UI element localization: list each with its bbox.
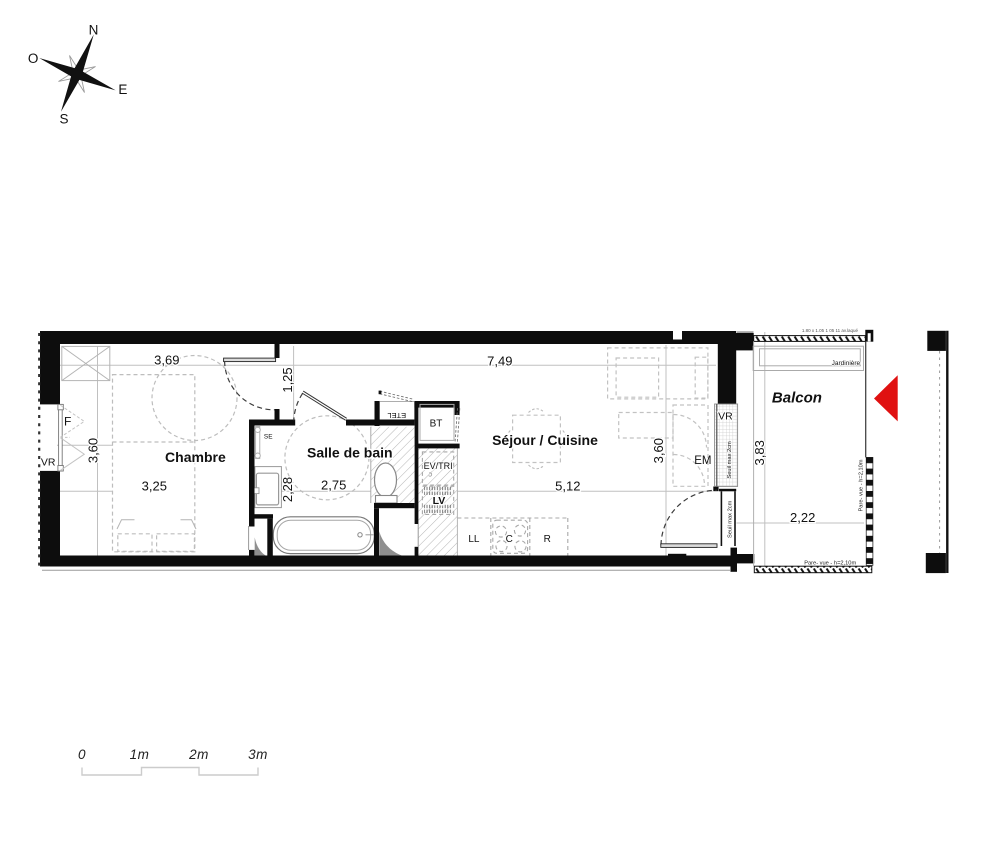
svg-text:R: R [544, 534, 551, 545]
svg-text:Pare- vue - h=2,10m: Pare- vue - h=2,10m [859, 459, 865, 511]
svg-text:0: 0 [78, 747, 86, 762]
svg-text:C: C [506, 534, 513, 545]
svg-text:2m: 2m [188, 747, 209, 762]
svg-text:BT: BT [430, 419, 443, 430]
svg-text:1.80 x 1.05 1 05 11 av.laqu: 1.80 x 1.05 1 05 11 av.laqué [802, 328, 859, 333]
svg-text:3,60: 3,60 [86, 438, 101, 463]
svg-text:S: S [59, 111, 68, 126]
svg-text:3,69: 3,69 [154, 353, 179, 368]
svg-text:E: E [118, 82, 127, 97]
svg-text:7,49: 7,49 [487, 353, 512, 368]
svg-text:Jardinière: Jardinière [832, 360, 861, 367]
svg-text:3,25: 3,25 [142, 478, 167, 493]
svg-text:3,60: 3,60 [651, 438, 666, 463]
svg-text:1m: 1m [130, 747, 150, 762]
svg-text:3,83: 3,83 [752, 440, 767, 465]
svg-text:Seuil max 2cm: Seuil max 2cm [727, 500, 733, 538]
svg-text:ETEL: ETEL [387, 411, 406, 420]
svg-text:Chambre: Chambre [165, 449, 226, 465]
svg-text:Seuil max 2cm: Seuil max 2cm [727, 441, 733, 479]
svg-text:SE: SE [264, 434, 273, 441]
svg-text:LL: LL [468, 534, 480, 545]
svg-text:2,75: 2,75 [321, 477, 346, 492]
svg-text:EM: EM [694, 455, 711, 467]
svg-text:F: F [64, 415, 71, 429]
svg-text:VR: VR [41, 456, 56, 468]
svg-text:Salle de bain: Salle de bain [307, 444, 393, 460]
svg-text:2,22: 2,22 [790, 510, 815, 525]
svg-text:Balcon: Balcon [772, 390, 822, 407]
svg-text:O: O [28, 51, 39, 66]
svg-text:N: N [89, 23, 99, 38]
svg-text:Pare- vue - h=2,10m: Pare- vue - h=2,10m [804, 561, 856, 567]
svg-text:1,25: 1,25 [280, 367, 295, 392]
svg-text:2,28: 2,28 [280, 477, 295, 502]
svg-text:EV/TRI: EV/TRI [424, 461, 453, 471]
svg-text:5,12: 5,12 [555, 479, 580, 494]
svg-text:VR: VR [718, 411, 733, 423]
svg-text:LV: LV [433, 495, 446, 507]
svg-text:3m: 3m [248, 747, 268, 762]
svg-text:Séjour / Cuisine: Séjour / Cuisine [492, 432, 598, 448]
